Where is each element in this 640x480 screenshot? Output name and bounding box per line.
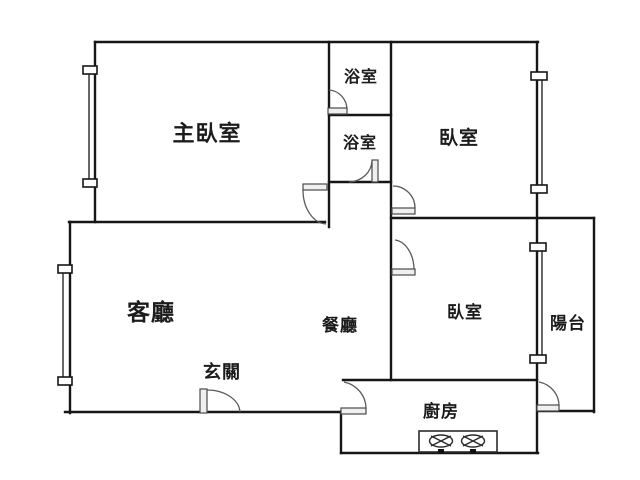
floor-plan: 主臥室 浴室 浴室 臥室 客廳 餐廳 臥室 陽台 玄關 廚房: [0, 0, 640, 480]
master-bedroom-door-icon: [303, 184, 327, 224]
kitchen-door-icon: [341, 382, 366, 414]
room-label-balcony: 陽台: [550, 313, 586, 333]
room-label-bathroom-upper: 浴室: [344, 67, 378, 86]
windows: [58, 66, 547, 385]
bedroom-upper-right-door-icon: [392, 186, 415, 214]
floor-plan-drawing: 主臥室 浴室 浴室 臥室 客廳 餐廳 臥室 陽台 玄關 廚房: [0, 0, 640, 480]
room-label-dining-room: 餐廳: [322, 315, 358, 335]
room-label-kitchen: 廚房: [423, 401, 459, 421]
stove-icon: [419, 431, 497, 453]
room-label-bedroom-upper-right: 臥室: [439, 126, 479, 149]
entry-door-icon: [200, 389, 240, 413]
bathroom-upper-door-icon: [328, 90, 347, 114]
room-label-bathroom-lower: 浴室: [343, 133, 377, 152]
walls: [65, 42, 594, 453]
bedroom-lower-right-door-icon: [392, 240, 415, 275]
doors: [200, 90, 559, 414]
room-label-entry: 玄關: [203, 361, 241, 382]
room-label-bedroom-lower-right: 臥室: [447, 302, 483, 322]
bedroom-upper-right-window-icon: [531, 72, 547, 193]
balcony-door-icon: [537, 382, 559, 411]
room-label-living-room: 客廳: [127, 299, 175, 325]
bathroom-lower-door-icon: [349, 160, 378, 182]
room-label-master-bedroom: 主臥室: [172, 121, 241, 146]
room-labels: 主臥室 浴室 浴室 臥室 客廳 餐廳 臥室 陽台 玄關 廚房: [127, 67, 586, 421]
